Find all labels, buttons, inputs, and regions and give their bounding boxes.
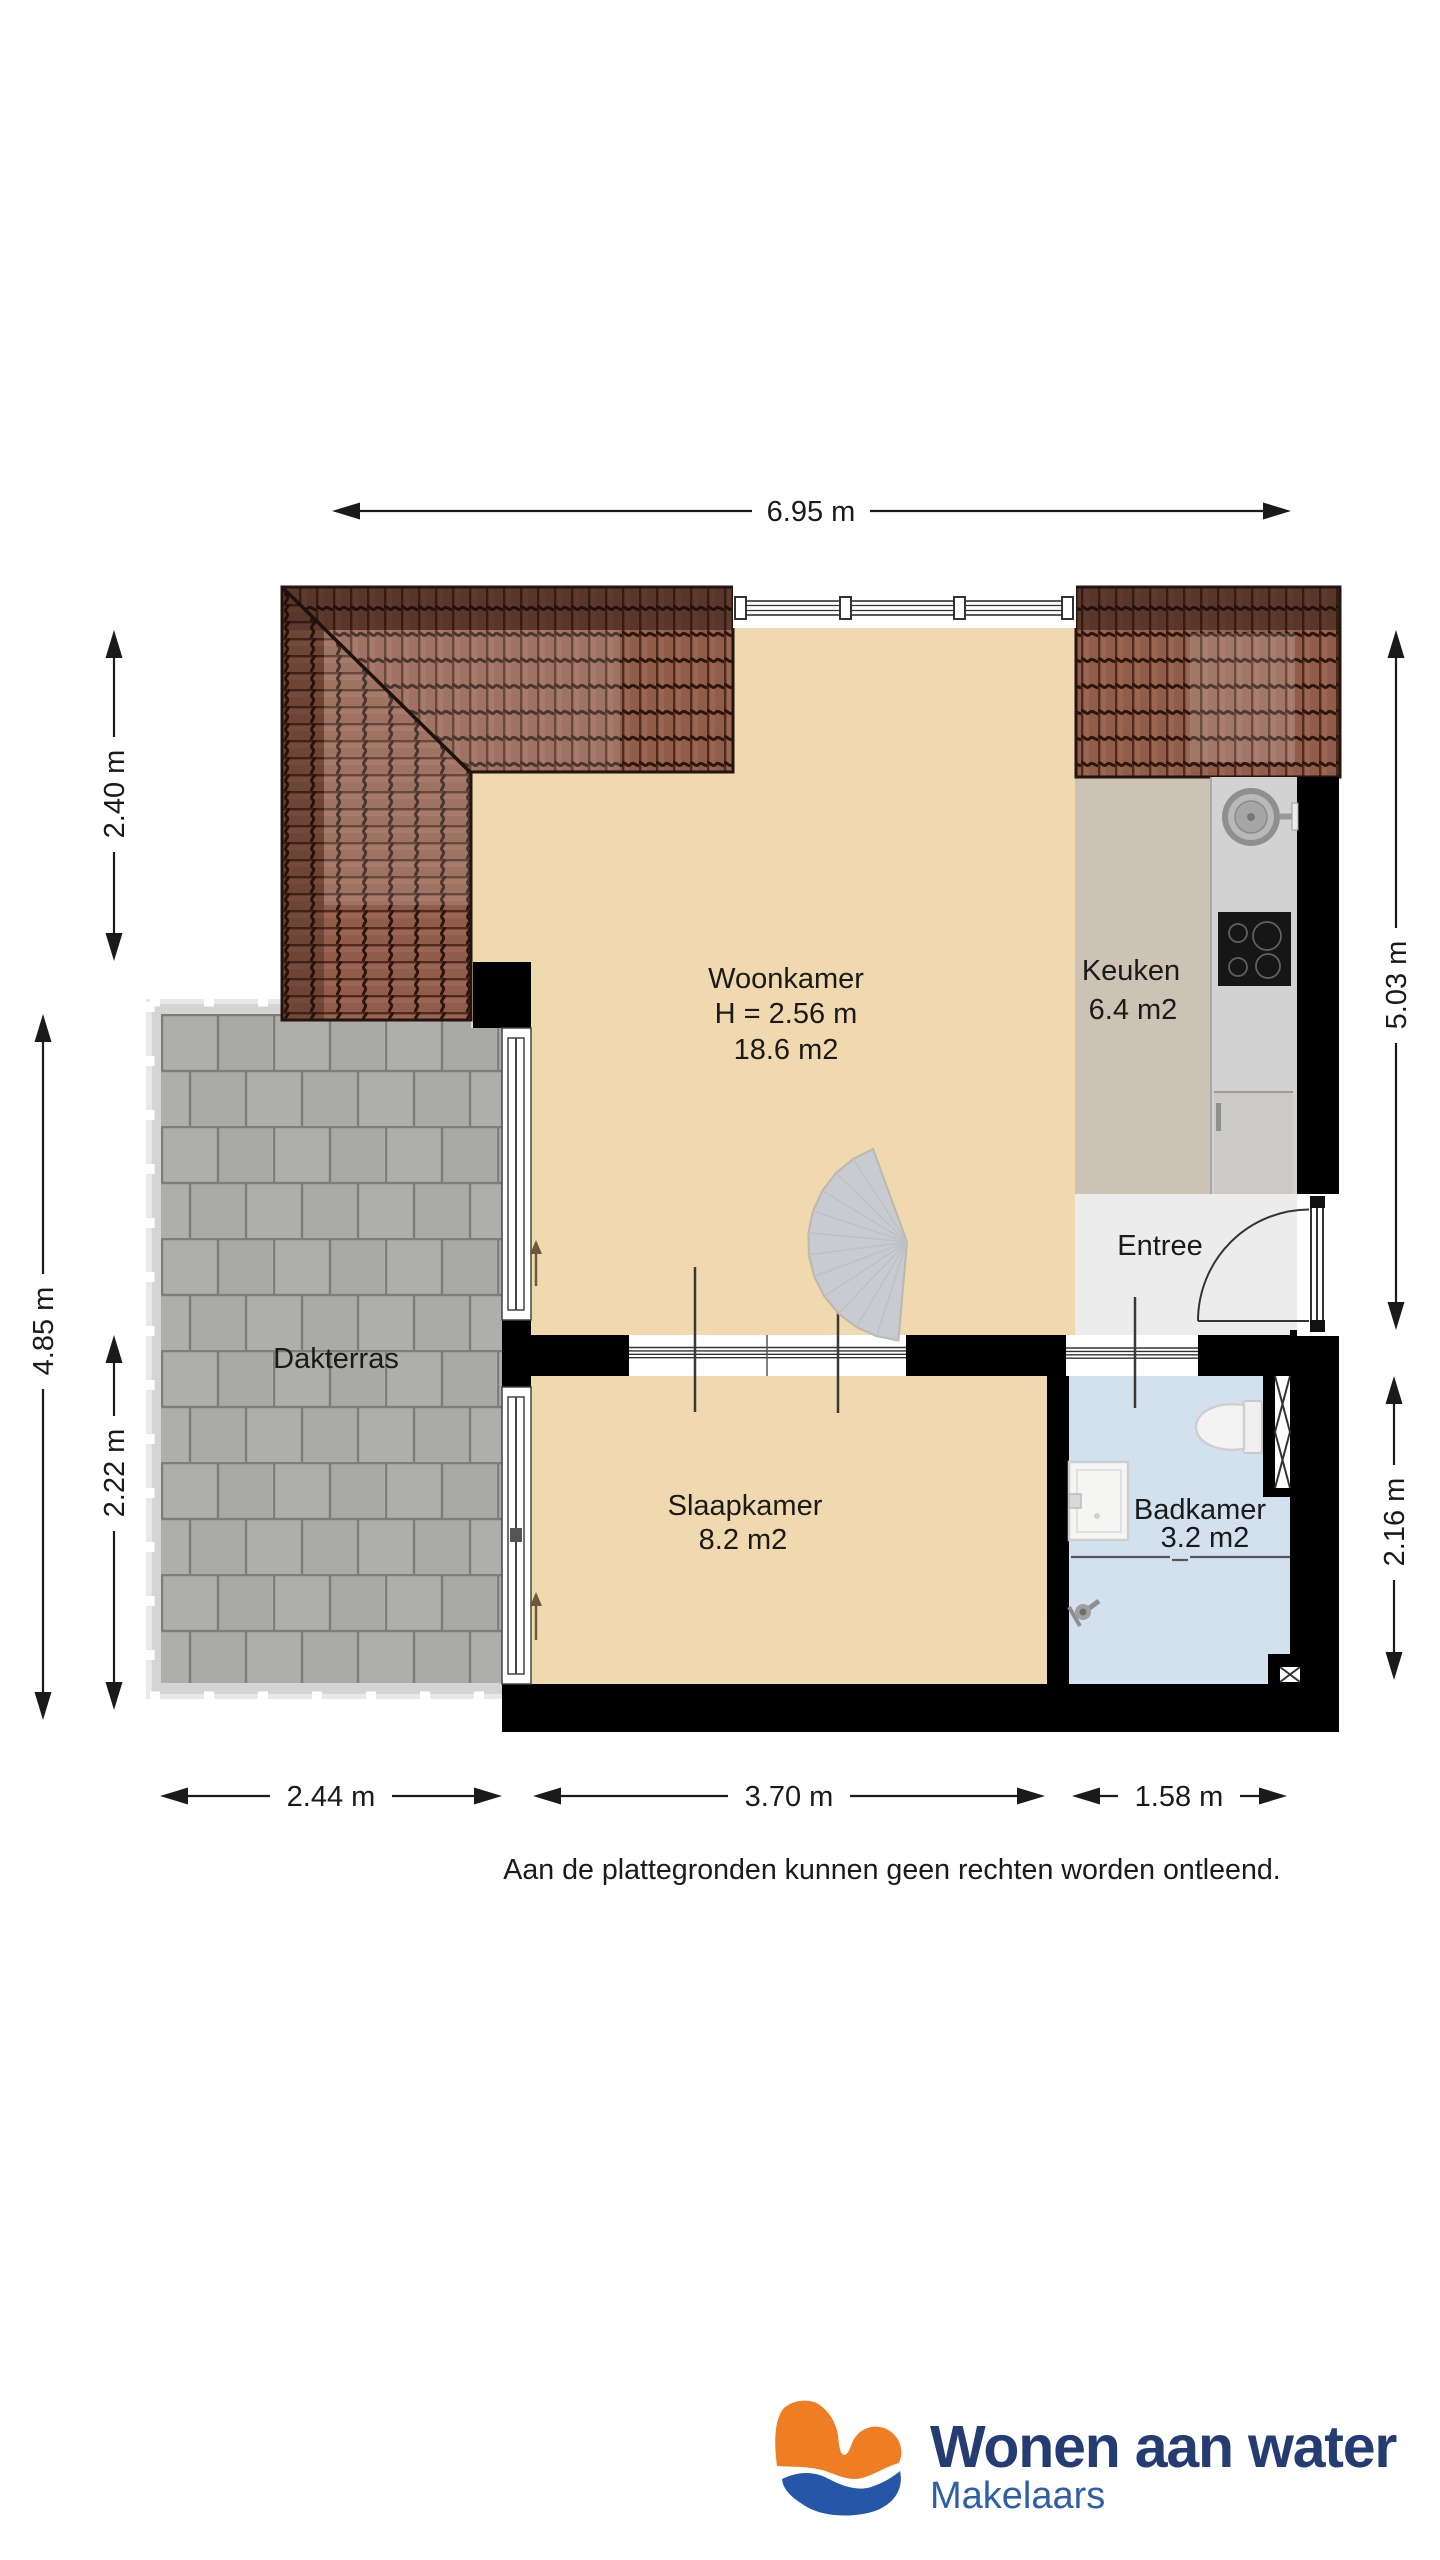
svg-text:5.03 m: 5.03 m: [1381, 941, 1413, 1030]
svg-text:4.85 m: 4.85 m: [28, 1287, 60, 1376]
svg-text:Dakterras: Dakterras: [273, 1343, 399, 1375]
svg-text:Aan de plattegronden kunnen ge: Aan de plattegronden kunnen geen rechten…: [503, 1854, 1280, 1886]
svg-text:2.22 m: 2.22 m: [99, 1429, 131, 1518]
svg-text:6.4 m2: 6.4 m2: [1089, 994, 1178, 1026]
svg-text:6.95 m: 6.95 m: [767, 496, 856, 528]
svg-text:Woonkamer: Woonkamer: [708, 963, 864, 995]
svg-text:2.40 m: 2.40 m: [99, 750, 131, 839]
svg-text:Entree: Entree: [1117, 1230, 1202, 1262]
svg-text:Wonen aan water: Wonen aan water: [930, 2414, 1397, 2480]
svg-text:2.44 m: 2.44 m: [287, 1781, 376, 1813]
svg-text:8.2 m2: 8.2 m2: [699, 1524, 788, 1556]
svg-text:Keuken: Keuken: [1082, 955, 1180, 987]
svg-text:2.16 m: 2.16 m: [1379, 1478, 1411, 1567]
svg-text:Slaapkamer: Slaapkamer: [668, 1490, 823, 1522]
svg-text:Makelaars: Makelaars: [930, 2475, 1105, 2517]
svg-text:1.58 m: 1.58 m: [1135, 1781, 1224, 1813]
svg-text:3.2 m2: 3.2 m2: [1161, 1522, 1250, 1554]
svg-text:H = 2.56 m: H = 2.56 m: [715, 998, 858, 1030]
svg-text:3.70 m: 3.70 m: [745, 1781, 834, 1813]
svg-text:18.6 m2: 18.6 m2: [734, 1034, 839, 1066]
